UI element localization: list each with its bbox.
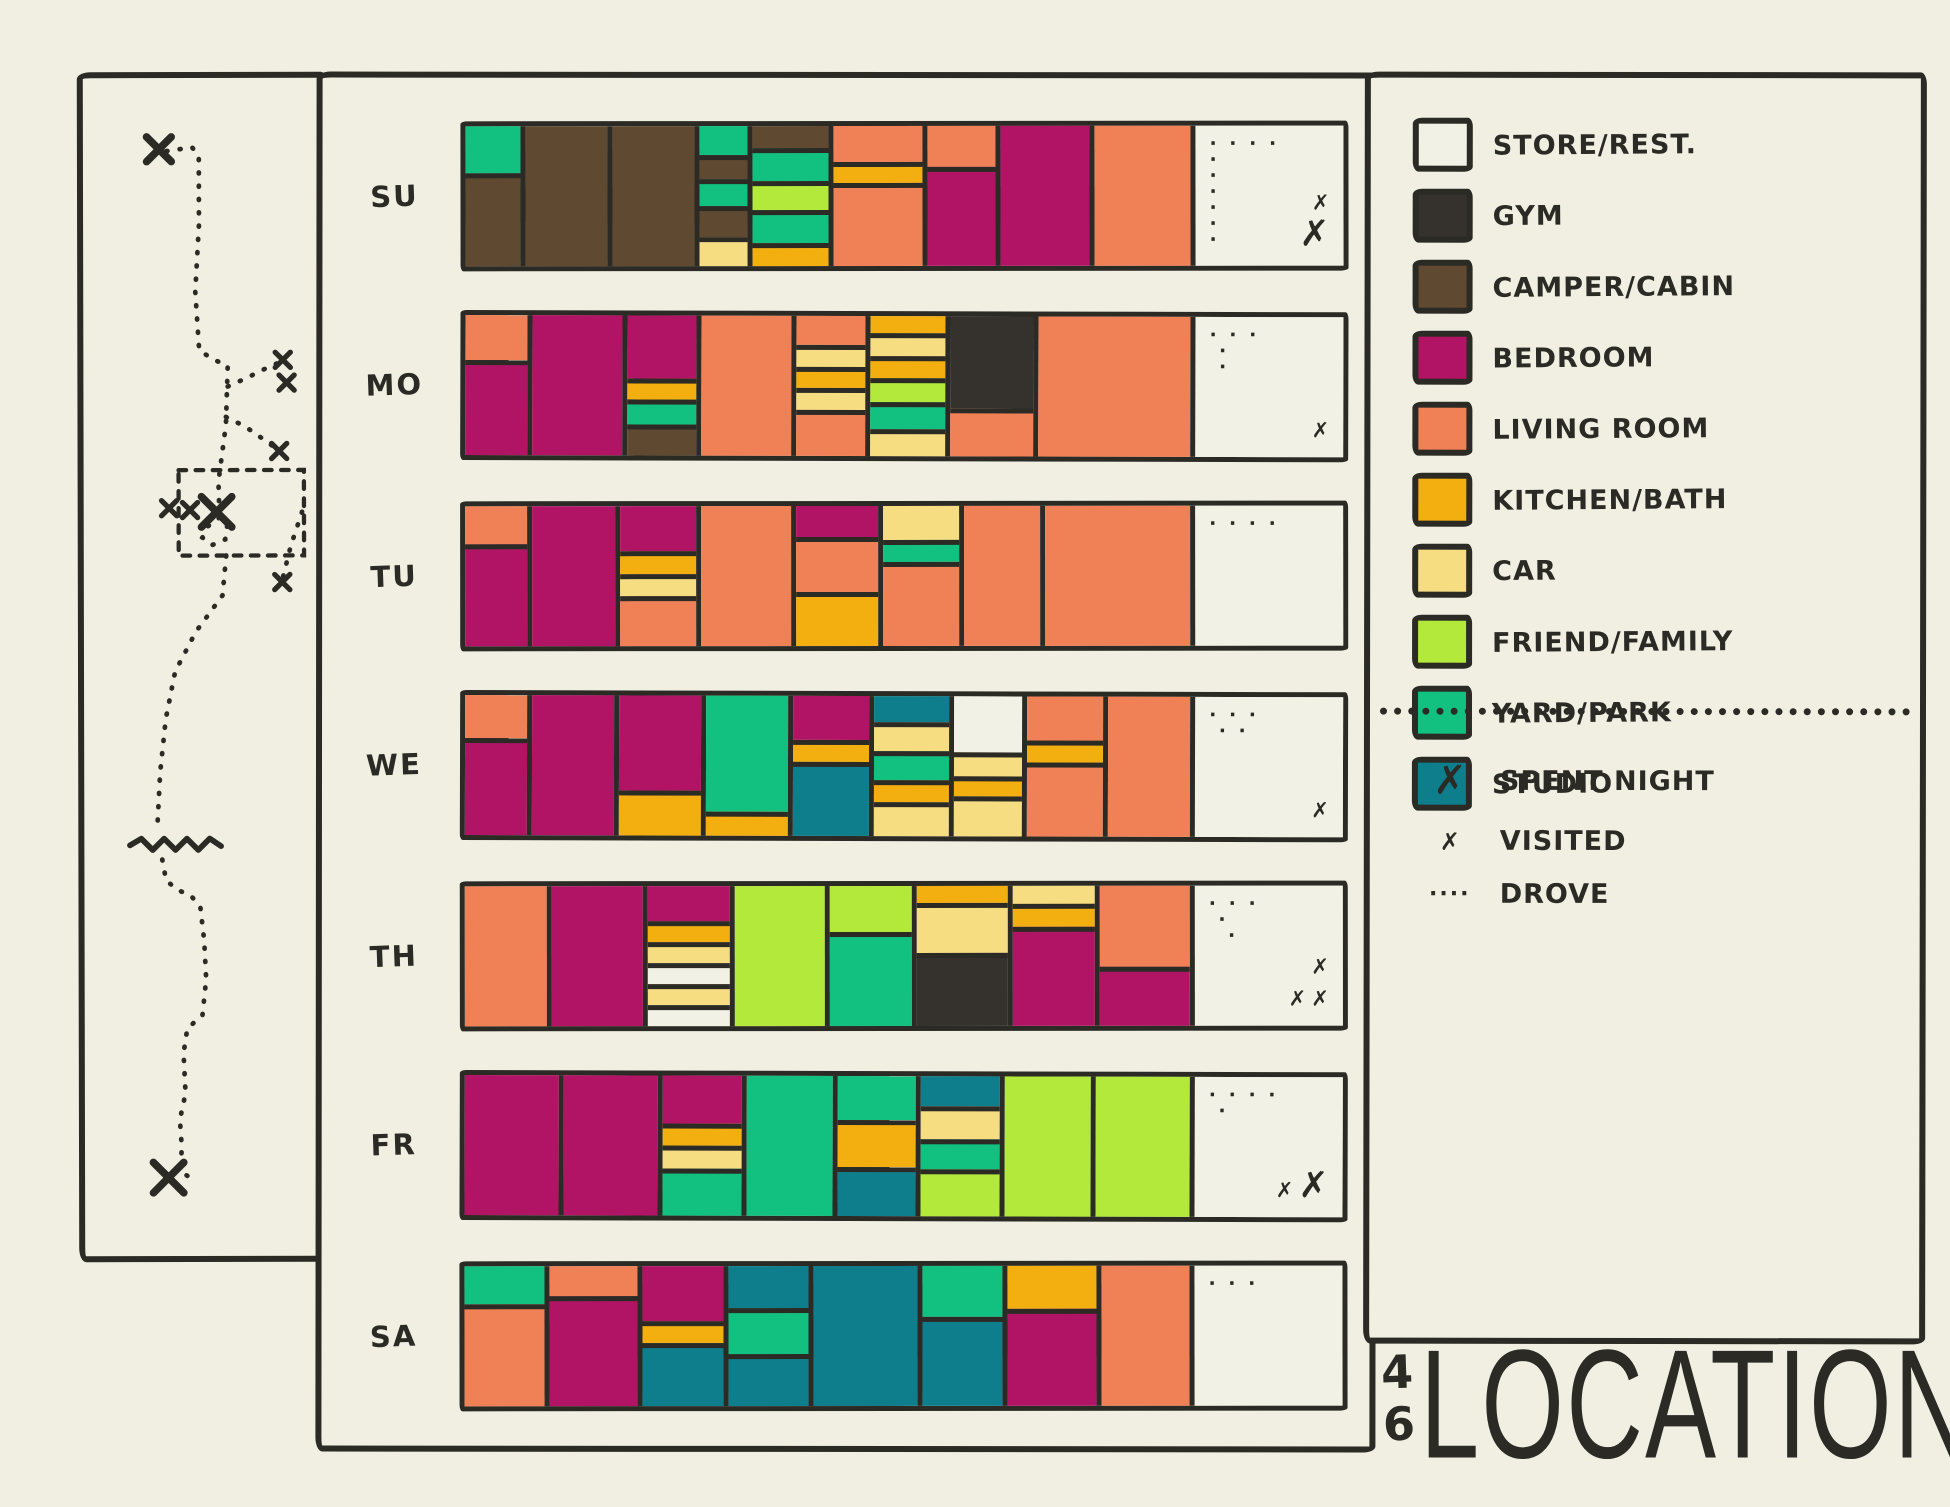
location-cell-studio bbox=[923, 1317, 1003, 1406]
location-cell-camper bbox=[753, 126, 828, 148]
location-cell-car bbox=[647, 984, 729, 1005]
location-cell-yard bbox=[874, 751, 949, 780]
night-box-mo: ∙ ∙ ∙ ∙ ∙✗ bbox=[1190, 317, 1343, 457]
location-cell-yard bbox=[700, 179, 748, 206]
location-cell-kitchen bbox=[833, 162, 922, 183]
time-column bbox=[865, 316, 946, 456]
night-box-fr: ∙ ∙ ∙ ∙ ∙✗✗ bbox=[1189, 1077, 1342, 1217]
location-cell-living bbox=[465, 315, 527, 360]
location-cell-friend bbox=[753, 181, 828, 210]
day-row-we: WE∙ ∙ ∙ ∙ ∙✗ bbox=[328, 690, 1364, 843]
location-cell-kitchen bbox=[706, 812, 788, 836]
location-cell-living bbox=[1045, 506, 1190, 646]
location-cell-yard bbox=[870, 402, 946, 429]
time-column bbox=[1003, 1266, 1096, 1406]
location-cell-yard bbox=[883, 540, 959, 562]
location-cell-kitchen bbox=[620, 551, 696, 574]
day-label-th: TH bbox=[325, 879, 462, 1034]
night-marks: ✗✗ bbox=[1294, 188, 1329, 256]
time-column bbox=[465, 506, 527, 646]
spent-night-icon: ✗ bbox=[1422, 758, 1478, 804]
location-cell-yard bbox=[700, 126, 748, 155]
drove-dots: ∙ ∙ ∙ ∙ ∙ bbox=[1209, 1087, 1279, 1119]
location-cell-kitchen bbox=[753, 243, 828, 266]
location-cell-camper bbox=[465, 174, 520, 267]
time-column bbox=[868, 696, 949, 836]
symbol-visited: ✗VISITED bbox=[1422, 826, 1715, 857]
route-map-panel bbox=[77, 72, 329, 1263]
location-cell-living bbox=[1101, 1266, 1189, 1406]
location-cell-bedroom bbox=[796, 506, 879, 537]
location-cell-living bbox=[1038, 317, 1190, 457]
legend-label-friend: FRIEND/FAMILY bbox=[1492, 626, 1734, 659]
location-cell-kitchen bbox=[643, 1321, 723, 1343]
night-box-th: ∙ ∙ ∙ ∙ ∙✗✗✗ bbox=[1190, 886, 1343, 1026]
location-cell-living bbox=[701, 316, 791, 456]
location-cell-store bbox=[647, 1005, 729, 1026]
location-cell-camper bbox=[525, 126, 607, 266]
location-cell-camper bbox=[627, 424, 696, 455]
location-cell-friend bbox=[1095, 1077, 1189, 1217]
day-row-mo: MO∙ ∙ ∙ ∙ ∙✗ bbox=[328, 310, 1364, 463]
visited-x-icon: ✗ bbox=[1312, 191, 1330, 215]
time-column bbox=[465, 315, 527, 455]
time-column bbox=[527, 506, 615, 646]
location-cell-camper bbox=[612, 126, 694, 266]
time-column bbox=[832, 1076, 916, 1216]
time-column bbox=[464, 1266, 544, 1406]
location-cell-car bbox=[796, 388, 865, 410]
drove-dots: ∙ ∙ ∙ ∙ bbox=[1209, 516, 1279, 532]
legend-label-bedroom: BEDROOM bbox=[1492, 342, 1654, 374]
day-bar-th: ∙ ∙ ∙ ∙ ∙✗✗✗ bbox=[460, 881, 1348, 1032]
drove-dots: ∙ ∙ ∙ ∙ ∙ bbox=[1209, 327, 1259, 375]
location-cell-bedroom bbox=[564, 1075, 658, 1215]
location-cell-studio bbox=[874, 696, 949, 723]
location-cell-bedroom bbox=[1099, 967, 1189, 1026]
location-cell-living bbox=[833, 126, 922, 162]
location-cell-friend bbox=[1004, 1076, 1091, 1216]
day-bar-mo: ∙ ∙ ∙ ∙ ∙✗ bbox=[460, 310, 1348, 462]
time-column bbox=[808, 1266, 917, 1406]
time-column bbox=[464, 1075, 558, 1215]
week-number: 4 6 bbox=[1380, 1345, 1416, 1450]
location-cell-kitchen bbox=[874, 780, 949, 802]
location-cell-yard bbox=[663, 1168, 742, 1216]
legend-label-living: LIVING ROOM bbox=[1492, 413, 1709, 446]
legend-item-kitchen: KITCHEN/BATH bbox=[1412, 473, 1734, 527]
time-column bbox=[615, 506, 696, 646]
location-cell-living bbox=[465, 506, 527, 544]
legend-label-store: STORE/REST. bbox=[1493, 129, 1697, 161]
location-cell-living bbox=[796, 316, 865, 345]
night-marks: ✗✗ bbox=[1271, 1171, 1329, 1207]
location-cell-bedroom bbox=[1000, 126, 1089, 266]
night-box-su: ∙ ∙ ∙ ∙ ∙ ∙ ∙ ∙ ∙ ∙✗✗ bbox=[1190, 126, 1343, 266]
day-row-tu: TU∙ ∙ ∙ ∙ bbox=[328, 501, 1364, 652]
location-cell-camper bbox=[700, 206, 748, 237]
location-cell-car bbox=[870, 429, 946, 456]
legend-divider bbox=[1380, 708, 1910, 716]
location-cell-studio bbox=[921, 1076, 999, 1106]
location-cell-kitchen bbox=[954, 776, 1023, 796]
night-box-tu: ∙ ∙ ∙ ∙ bbox=[1190, 506, 1343, 646]
time-column bbox=[741, 1076, 833, 1216]
time-column bbox=[642, 886, 729, 1026]
night-marks: ✗ bbox=[1307, 415, 1330, 447]
drove-route-dotted-line bbox=[162, 859, 206, 1178]
location-cell-bedroom bbox=[643, 1266, 723, 1321]
day-bar-su: ∙ ∙ ∙ ∙ ∙ ∙ ∙ ∙ ∙ ∙✗✗ bbox=[460, 121, 1348, 272]
time-column bbox=[1094, 886, 1189, 1026]
day-label-tu: TU bbox=[326, 499, 463, 654]
location-cell-kitchen bbox=[1027, 741, 1102, 763]
kitchen-swatch bbox=[1412, 473, 1472, 527]
drove-dots: ∙ ∙ ∙ ∙ ∙ bbox=[1209, 707, 1259, 739]
time-column bbox=[1033, 316, 1190, 456]
location-cell-friend bbox=[734, 886, 824, 1026]
visited-x-icon: ✗ bbox=[1276, 1178, 1294, 1202]
time-column bbox=[1090, 1077, 1189, 1217]
location-cell-bedroom bbox=[647, 886, 729, 921]
location-cell-yard bbox=[838, 1076, 917, 1120]
location-cell-kitchen bbox=[796, 366, 865, 388]
mark-line: ✗ bbox=[1294, 220, 1329, 256]
drove-icon: ∙∙∙∙ bbox=[1422, 882, 1478, 907]
mark-line: ✗ bbox=[1284, 952, 1329, 984]
visited-x-icon: ✗ bbox=[1312, 418, 1330, 442]
time-column bbox=[701, 696, 789, 836]
visited-x-icon: ✗ bbox=[1311, 798, 1329, 822]
legend-label-gym: GYM bbox=[1493, 200, 1564, 232]
location-cell-car bbox=[796, 345, 865, 367]
spent-night-x-icon: ✗ bbox=[1298, 1165, 1328, 1206]
legend-item-living: LIVING ROOM bbox=[1412, 402, 1734, 456]
drove-dots: ∙ ∙ ∙ bbox=[1208, 1276, 1258, 1292]
time-column bbox=[995, 126, 1089, 266]
location-cell-kitchen bbox=[796, 592, 879, 646]
time-column bbox=[999, 1076, 1091, 1216]
location-cell-living bbox=[1027, 763, 1103, 837]
visited-x-icon bbox=[279, 375, 294, 390]
day-rows: SU∙ ∙ ∙ ∙ ∙ ∙ ∙ ∙ ∙ ∙✗✗MO∙ ∙ ∙ ∙ ∙✗TU∙ ∙… bbox=[323, 78, 1371, 79]
drove-route-dotted-line bbox=[283, 512, 302, 577]
day-row-th: TH∙ ∙ ∙ ∙ ∙✗✗✗ bbox=[328, 881, 1364, 1032]
time-column bbox=[922, 126, 996, 266]
drove-dots: ∙ ∙ ∙ ∙ ∙ bbox=[1209, 896, 1259, 944]
location-cell-car bbox=[954, 796, 1023, 836]
legend-label-car: CAR bbox=[1492, 555, 1557, 586]
location-cell-living bbox=[951, 408, 1034, 456]
time-column bbox=[1103, 697, 1191, 837]
location-cell-living bbox=[964, 506, 1040, 646]
visited-x-icon bbox=[275, 352, 290, 367]
time-column bbox=[946, 316, 1034, 456]
location-cell-bedroom bbox=[465, 738, 527, 835]
location-cell-yard bbox=[627, 399, 696, 424]
location-cell-yard bbox=[753, 148, 828, 182]
night-marks: ✗✗✗ bbox=[1284, 952, 1329, 1016]
time-column bbox=[696, 506, 791, 646]
location-cell-living bbox=[620, 596, 696, 646]
location-cell-living bbox=[465, 886, 547, 1026]
location-cell-kitchen bbox=[1012, 904, 1094, 927]
legend-item-gym: GYM bbox=[1413, 189, 1735, 243]
time-column bbox=[465, 126, 520, 266]
drove-route-dotted-line bbox=[166, 147, 228, 517]
day-bar-fr: ∙ ∙ ∙ ∙ ∙✗✗ bbox=[459, 1070, 1347, 1222]
legend-item-store: STORE/REST. bbox=[1413, 118, 1735, 172]
time-column bbox=[614, 695, 702, 835]
location-cell-kitchen bbox=[793, 740, 868, 762]
location-cell-car bbox=[700, 237, 748, 266]
legend-panel: STORE/REST.GYMCAMPER/CABINBEDROOMLIVING … bbox=[1363, 72, 1927, 1345]
time-column bbox=[729, 886, 824, 1026]
location-cell-gym bbox=[951, 316, 1034, 408]
time-column bbox=[527, 315, 622, 455]
location-cell-car bbox=[917, 903, 1007, 954]
time-column bbox=[1022, 696, 1103, 836]
location-cell-friend bbox=[921, 1169, 1000, 1217]
mark-line: ✗ bbox=[1306, 795, 1329, 827]
legend-item-car: CAR bbox=[1412, 544, 1734, 598]
night-marks: ✗ bbox=[1306, 795, 1329, 827]
location-cell-bedroom bbox=[663, 1076, 742, 1124]
time-column bbox=[607, 126, 694, 266]
legend-item-friend: FRIEND/FAMILY bbox=[1412, 615, 1734, 669]
time-column bbox=[918, 1266, 1003, 1406]
time-column bbox=[1040, 506, 1190, 646]
bedroom-swatch bbox=[1412, 331, 1472, 385]
location-cell-bedroom bbox=[465, 544, 527, 646]
route-map bbox=[83, 78, 311, 1244]
day-bar-sa: ∙ ∙ ∙ bbox=[459, 1261, 1347, 1412]
location-cell-yard bbox=[923, 1266, 1003, 1317]
time-column bbox=[545, 1266, 638, 1406]
time-column bbox=[638, 1266, 723, 1406]
time-column bbox=[695, 126, 748, 266]
symbol-label-drove: DROVE bbox=[1500, 879, 1610, 910]
visited-x-icon: ✗ bbox=[1311, 955, 1329, 979]
location-cell-living bbox=[464, 1304, 544, 1406]
location-cell-car bbox=[620, 574, 696, 597]
time-column bbox=[788, 696, 869, 836]
night-box-sa: ∙ ∙ ∙ bbox=[1189, 1266, 1342, 1406]
location-cell-living bbox=[1099, 886, 1189, 967]
mark-line: ✗✗ bbox=[1284, 984, 1329, 1016]
location-cell-yard bbox=[464, 1266, 544, 1304]
day-row-fr: FR∙ ∙ ∙ ∙ ∙✗✗ bbox=[327, 1070, 1363, 1223]
time-column bbox=[465, 695, 527, 835]
day-bar-tu: ∙ ∙ ∙ ∙ bbox=[460, 501, 1348, 652]
location-cell-studio bbox=[813, 1266, 917, 1406]
location-cell-car bbox=[663, 1146, 741, 1169]
time-column bbox=[791, 506, 879, 646]
time-column bbox=[520, 126, 607, 266]
location-cell-car bbox=[1012, 886, 1094, 904]
time-column bbox=[696, 316, 791, 456]
location-cell-yard bbox=[921, 1139, 999, 1169]
spent-night-x-icon bbox=[201, 497, 231, 527]
visited-x-icon: ✗ bbox=[1311, 987, 1329, 1011]
time-column bbox=[1007, 886, 1094, 1026]
location-cell-kitchen bbox=[663, 1123, 741, 1146]
symbol-label-visited: VISITED bbox=[1500, 826, 1627, 857]
day-row-sa: SA∙ ∙ ∙ bbox=[327, 1261, 1363, 1412]
location-cell-living bbox=[465, 695, 527, 738]
location-cell-yard bbox=[753, 210, 828, 243]
location-cell-living bbox=[701, 506, 791, 646]
night-box-we: ∙ ∙ ∙ ∙ ∙✗ bbox=[1190, 697, 1343, 837]
legend-item-bedroom: BEDROOM bbox=[1412, 331, 1734, 385]
day-bar-we: ∙ ∙ ∙ ∙ ∙✗ bbox=[460, 690, 1348, 842]
location-cell-friend bbox=[830, 886, 912, 932]
location-cell-bedroom bbox=[619, 695, 701, 790]
location-cell-studio bbox=[728, 1266, 808, 1308]
gym-swatch bbox=[1413, 189, 1473, 243]
page-title: LOCATION bbox=[1420, 1328, 1950, 1481]
location-cell-car bbox=[874, 722, 949, 751]
location-cell-store bbox=[647, 963, 729, 984]
visited-x-icon bbox=[162, 501, 177, 516]
location-cell-living bbox=[927, 126, 996, 167]
time-column bbox=[526, 695, 614, 835]
time-column bbox=[748, 126, 828, 266]
location-cell-bedroom bbox=[793, 696, 868, 740]
symbol-spent-night: ✗SPENT NIGHT bbox=[1422, 758, 1715, 804]
legend-item-camper: CAMPER/CABIN bbox=[1413, 260, 1735, 314]
week-number-top: 4 bbox=[1380, 1345, 1414, 1398]
day-label-we: WE bbox=[326, 688, 463, 842]
location-cell-living bbox=[550, 1266, 638, 1296]
location-cell-kitchen bbox=[917, 886, 1007, 903]
location-cell-kitchen bbox=[627, 378, 696, 399]
location-cell-living bbox=[1028, 696, 1103, 740]
location-cell-kitchen bbox=[837, 1120, 916, 1167]
visited-x-icon: ✗ bbox=[1289, 987, 1307, 1011]
location-cell-studio bbox=[643, 1343, 723, 1407]
day-label-fr: FR bbox=[325, 1068, 462, 1222]
location-cell-store bbox=[954, 696, 1023, 752]
mark-line: ✗✗ bbox=[1271, 1171, 1329, 1207]
visited-x-icon bbox=[272, 443, 287, 458]
drove-route-dotted-line bbox=[228, 362, 281, 387]
time-column bbox=[959, 506, 1040, 646]
location-cell-kitchen bbox=[619, 790, 701, 836]
time-column bbox=[791, 316, 865, 456]
location-cell-car bbox=[921, 1106, 999, 1139]
time-column bbox=[825, 886, 912, 1026]
time-column bbox=[912, 886, 1007, 1026]
time-column bbox=[658, 1076, 742, 1216]
location-cell-kitchen bbox=[870, 356, 946, 378]
legend-label-camper: CAMPER/CABIN bbox=[1492, 271, 1735, 304]
spent-night-x-icon bbox=[153, 1162, 183, 1192]
week-chart-panel: SU∙ ∙ ∙ ∙ ∙ ∙ ∙ ∙ ∙ ∙✗✗MO∙ ∙ ∙ ∙ ∙✗TU∙ ∙… bbox=[315, 72, 1376, 1453]
drove-dots: ∙ ∙ ∙ ∙ ∙ ∙ ∙ ∙ ∙ ∙ bbox=[1209, 136, 1279, 248]
friend-swatch bbox=[1412, 615, 1472, 669]
location-cell-bedroom bbox=[532, 506, 615, 646]
location-cell-yard bbox=[728, 1308, 808, 1355]
location-cell-car bbox=[647, 942, 729, 963]
location-cell-car bbox=[954, 753, 1023, 777]
location-cell-bedroom bbox=[620, 506, 696, 551]
drove-route-dotted-line bbox=[157, 556, 227, 826]
location-cell-yard bbox=[746, 1076, 833, 1216]
living-swatch bbox=[1412, 402, 1472, 456]
location-cell-kitchen bbox=[1008, 1266, 1096, 1309]
visited-x-icon bbox=[182, 502, 197, 517]
location-cell-car bbox=[873, 802, 948, 836]
location-cell-bedroom bbox=[1012, 927, 1094, 1026]
location-cell-bedroom bbox=[927, 166, 996, 266]
location-cell-gym bbox=[917, 953, 1007, 1026]
location-cell-bedroom bbox=[550, 1296, 638, 1406]
location-cell-living bbox=[1095, 126, 1191, 266]
time-column bbox=[916, 1076, 1000, 1216]
time-column bbox=[559, 1075, 658, 1215]
location-cell-friend bbox=[870, 378, 946, 403]
location-cell-yard bbox=[706, 696, 789, 812]
location-cell-living bbox=[796, 410, 865, 456]
location-cell-bedroom bbox=[465, 360, 527, 456]
location-cell-camper bbox=[700, 155, 748, 179]
location-cell-kitchen bbox=[647, 921, 729, 942]
dear-data-location-card: SU∙ ∙ ∙ ∙ ∙ ∙ ∙ ∙ ∙ ∙✗✗MO∙ ∙ ∙ ∙ ∙✗TU∙ ∙… bbox=[0, 0, 1950, 1507]
week-number-bottom: 6 bbox=[1382, 1397, 1416, 1450]
day-label-su: SU bbox=[326, 119, 463, 274]
store-swatch bbox=[1413, 118, 1473, 172]
spent-night-x-icon: ✗ bbox=[1299, 214, 1329, 255]
location-cell-living bbox=[833, 183, 922, 266]
location-cell-kitchen bbox=[870, 316, 946, 333]
time-column bbox=[1096, 1266, 1189, 1406]
mark-line: ✗ bbox=[1307, 415, 1330, 447]
location-cell-yard bbox=[830, 932, 912, 1026]
location-cell-car bbox=[883, 506, 959, 540]
location-cell-studio bbox=[793, 762, 869, 836]
time-column bbox=[1090, 126, 1191, 266]
route-break-squiggle bbox=[130, 839, 221, 851]
time-column bbox=[723, 1266, 808, 1406]
home-area-dashed-box bbox=[179, 470, 305, 556]
time-column bbox=[547, 886, 642, 1026]
location-cell-living bbox=[883, 562, 959, 646]
location-cell-bedroom bbox=[627, 315, 696, 378]
day-row-su: SU∙ ∙ ∙ ∙ ∙ ∙ ∙ ∙ ∙ ∙✗✗ bbox=[328, 121, 1364, 272]
day-label-sa: SA bbox=[325, 1259, 462, 1414]
time-column bbox=[828, 126, 922, 266]
car-swatch bbox=[1412, 544, 1472, 598]
location-cell-car bbox=[870, 333, 946, 355]
location-cell-bedroom bbox=[531, 695, 614, 835]
visited-icon: ✗ bbox=[1422, 827, 1478, 855]
location-cell-yard bbox=[465, 126, 520, 173]
symbol-label-spent-night: SPENT NIGHT bbox=[1500, 765, 1715, 796]
time-column bbox=[465, 886, 547, 1026]
location-cell-bedroom bbox=[464, 1075, 558, 1215]
time-column bbox=[949, 696, 1023, 836]
legend-label-kitchen: KITCHEN/BATH bbox=[1492, 484, 1727, 517]
legend-symbols: ✗SPENT NIGHT✗VISITED∙∙∙∙DROVE bbox=[1422, 758, 1715, 910]
symbol-drove: ∙∙∙∙DROVE bbox=[1422, 879, 1715, 910]
location-cell-living bbox=[1108, 697, 1191, 837]
location-cell-bedroom bbox=[532, 315, 622, 455]
location-cell-bedroom bbox=[552, 886, 642, 1026]
camper-swatch bbox=[1413, 260, 1473, 314]
day-label-mo: MO bbox=[326, 308, 463, 462]
time-column bbox=[878, 506, 959, 646]
